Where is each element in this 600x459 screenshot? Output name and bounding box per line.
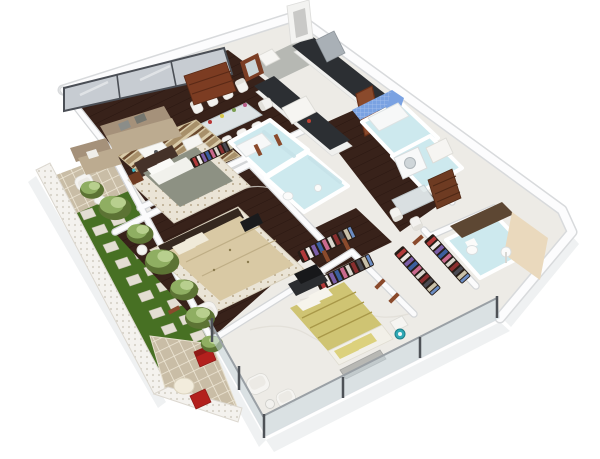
duvet-pattern [213, 269, 215, 271]
shrub [145, 249, 180, 274]
table-flowers [243, 103, 247, 107]
table-flowers [232, 108, 236, 112]
duvet-pattern [229, 249, 231, 251]
shrub [170, 280, 199, 301]
table-flowers [208, 120, 212, 124]
toilet [467, 246, 478, 255]
floor-lamp [266, 400, 275, 409]
shrub [127, 224, 154, 244]
apartment-3d-render [0, 0, 600, 459]
toilet [283, 192, 293, 200]
round-patio-table [174, 378, 194, 394]
duvet-pattern [247, 261, 249, 263]
sink [315, 185, 322, 192]
floor-plan-render [0, 0, 600, 459]
teal-stool-top [398, 332, 402, 336]
washer-door [405, 158, 416, 169]
round-side-table [137, 245, 147, 255]
shrub [80, 181, 104, 199]
shrub [99, 196, 132, 220]
fruit [307, 119, 311, 123]
table-flowers [220, 114, 224, 118]
